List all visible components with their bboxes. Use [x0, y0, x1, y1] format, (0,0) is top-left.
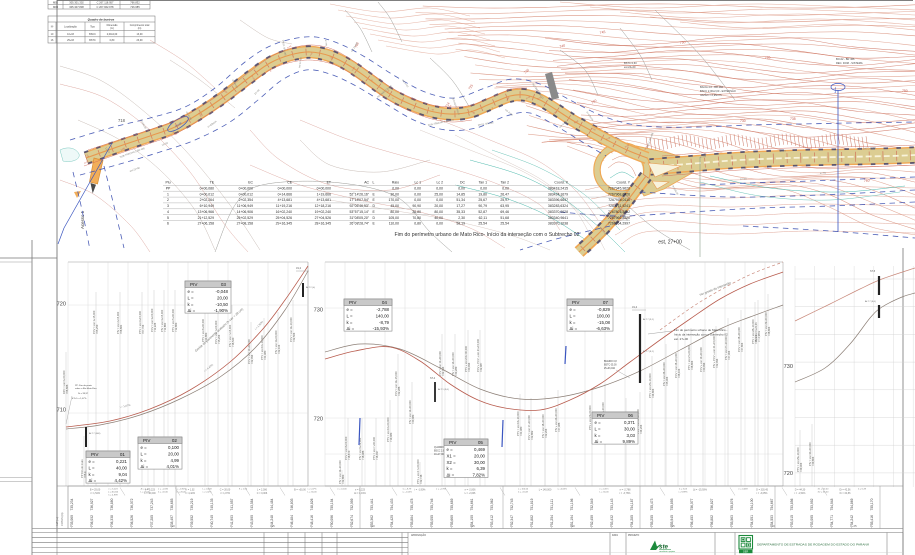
svg-text:35,33: 35,33	[456, 210, 465, 214]
svg-text:753,143: 753,143	[610, 498, 614, 510]
svg-text:BSCC: BSCC	[89, 33, 96, 36]
svg-text:751,882: 751,882	[530, 515, 534, 527]
svg-text:25,00: 25,00	[434, 192, 443, 196]
svg-text:756,827: 756,827	[710, 498, 714, 510]
svg-text:20,00: 20,00	[474, 453, 486, 458]
svg-text:BSTC 0,60: BSTC 0,60	[624, 61, 637, 65]
svg-text:e = 0,469: e = 0,469	[738, 488, 748, 490]
svg-text:e = 5,223: e = 5,223	[108, 488, 118, 490]
svg-text:10+17,00: 10+17,00	[434, 454, 444, 456]
svg-text:K = 1,02: K = 1,02	[186, 489, 196, 492]
svg-text:110,00: 110,00	[389, 222, 399, 226]
svg-text:722,863: 722,863	[341, 474, 345, 484]
svg-text:752,347: 752,347	[510, 515, 514, 527]
svg-text:63,95: 63,95	[500, 204, 509, 208]
svg-text:C 267.118.957: C 267.118.957	[97, 1, 114, 5]
svg-text:k = -15,08: k = -15,08	[518, 491, 529, 493]
svg-text:0+00,000: 0+00,000	[239, 187, 254, 191]
svg-text:753,412: 753,412	[490, 515, 494, 527]
svg-text:Δi =: Δi =	[570, 326, 578, 331]
svg-text:k = -8,79: k = -8,79	[403, 488, 412, 490]
svg-text:766.832: 766.832	[130, 1, 140, 5]
svg-text:05: 05	[478, 440, 484, 445]
svg-text:14+06,906: 14+06,906	[237, 210, 253, 214]
svg-text:15: 15	[271, 524, 275, 528]
svg-text:e =: e =	[188, 289, 195, 294]
svg-text:730: 730	[314, 308, 323, 314]
svg-text:728,304: 728,304	[754, 334, 758, 344]
svg-text:724,204: 724,204	[639, 424, 643, 434]
svg-text:L: L	[373, 181, 375, 185]
svg-text:715,204: 715,204	[217, 334, 221, 344]
svg-text:L =: L =	[141, 451, 147, 456]
svg-text:4: 4	[167, 210, 169, 214]
svg-text:4+13,681: 4+13,681	[278, 198, 293, 202]
svg-text:10+03: 10+03	[67, 33, 74, 36]
svg-text:754,667: 754,667	[770, 498, 774, 510]
svg-text:i = -1,90%: i = -1,90%	[176, 488, 186, 490]
svg-text:PP: PP	[166, 187, 171, 191]
svg-text:REC. DOM - SISTEMA: REC. DOM - SISTEMA	[836, 61, 863, 65]
svg-text:BSTC 05,00: BSTC 05,00	[604, 365, 617, 367]
svg-text:0,00: 0,00	[436, 187, 443, 191]
svg-text:62,11: 62,11	[479, 216, 487, 220]
svg-text:40,00: 40,00	[116, 465, 128, 470]
svg-text:726,804: 726,804	[690, 360, 694, 370]
svg-text:2+02,264: 2+02,264	[200, 198, 215, 202]
svg-text:k = -10,50: k = -10,50	[158, 491, 169, 493]
svg-text:L = 20,00: L = 20,00	[140, 491, 150, 493]
svg-text:k = 3,03: k = 3,03	[679, 488, 688, 490]
svg-text:0,80: 0,80	[110, 39, 115, 42]
svg-text:720: 720	[784, 471, 793, 477]
svg-text:727,804: 727,804	[740, 342, 744, 352]
svg-text:721,380: 721,380	[519, 426, 523, 436]
svg-text:Tan 2: Tan 2	[501, 181, 509, 185]
svg-text:ALT 1 (9,0): ALT 1 (9,0)	[438, 388, 449, 391]
svg-text:92°06'46,53": 92°06'46,53"	[349, 204, 369, 208]
svg-text:720: 720	[57, 302, 66, 308]
svg-text:755,255: 755,255	[650, 515, 654, 527]
svg-text:20: 20	[371, 524, 375, 528]
svg-text:720,094: 720,094	[702, 362, 706, 372]
svg-text:Lc 2: Lc 2	[437, 181, 444, 185]
svg-text:746,803: 746,803	[290, 498, 294, 510]
svg-text:40,00: 40,00	[434, 216, 443, 220]
svg-text:718,386: 718,386	[361, 450, 365, 460]
svg-text:28+16,345: 28+16,345	[315, 222, 331, 226]
svg-text:25,54: 25,54	[500, 222, 509, 226]
svg-text:736,526: 736,526	[130, 515, 134, 527]
svg-text:736,880: 736,880	[110, 498, 114, 510]
svg-text:-1,90%: -1,90%	[214, 308, 228, 313]
svg-text:754,285: 754,285	[630, 515, 634, 527]
svg-text:Δi =: Δi =	[89, 478, 97, 483]
svg-text:10: 10	[171, 524, 175, 528]
svg-text:721,380: 721,380	[263, 350, 267, 360]
svg-text:740,135: 740,135	[210, 498, 214, 510]
svg-text:Δi =: Δi =	[188, 308, 196, 313]
svg-text:751,111: 751,111	[550, 499, 554, 511]
svg-text:Δi = 1,06: Δi = 1,06	[141, 487, 150, 490]
svg-text:ALT 7 (046): ALT 7 (046)	[89, 432, 101, 435]
svg-text:BO-02 - BR 466: BO-02 - BR 466	[836, 57, 855, 61]
svg-text:705,259: 705,259	[95, 324, 99, 334]
svg-text:30,00: 30,00	[390, 192, 399, 196]
svg-text:724,804: 724,804	[651, 388, 655, 398]
svg-text:k = 4,999: k = 4,999	[108, 495, 118, 497]
svg-text:L = 30,00: L = 30,00	[307, 491, 317, 493]
svg-text:ET-4 i = 1,07%: ET-4 i = 1,07%	[72, 398, 86, 400]
svg-text:25: 25	[471, 524, 475, 528]
svg-text:(m): (m)	[138, 27, 142, 30]
svg-text:719,083: 719,083	[389, 432, 393, 442]
svg-text:752,099: 752,099	[350, 498, 354, 510]
svg-text:PROJETO: PROJETO	[628, 534, 639, 537]
svg-text:729,804: 729,804	[811, 456, 815, 466]
svg-text:L =: L =	[595, 426, 601, 431]
svg-text:C = 20,00: C = 20,00	[220, 489, 231, 492]
svg-text:e =: e =	[89, 459, 96, 464]
svg-text:Δi =: Δi =	[447, 473, 455, 478]
svg-text:755: 755	[765, 55, 771, 60]
svg-text:722,286: 722,286	[397, 386, 401, 396]
svg-text:Quadro de bueiros: Quadro de bueiros	[88, 18, 115, 22]
svg-text:e=7%: e=7%	[324, 40, 328, 47]
svg-text:Raio: Raio	[392, 181, 399, 185]
svg-text:737,285: 737,285	[150, 515, 154, 527]
svg-text:727,304: 727,304	[727, 350, 731, 360]
svg-text:722,094: 722,094	[250, 354, 254, 364]
svg-text:756,453: 756,453	[690, 515, 694, 527]
svg-text:718,670: 718,670	[347, 450, 351, 460]
svg-text:e =: e =	[347, 307, 354, 312]
svg-text:753,441: 753,441	[370, 498, 374, 510]
svg-text:20,00: 20,00	[434, 204, 443, 208]
svg-text:0,00: 0,00	[414, 198, 421, 202]
svg-text:30: 30	[571, 524, 575, 528]
svg-text:743,584: 743,584	[250, 498, 254, 510]
svg-text:L = 140,000: L = 140,000	[539, 489, 552, 492]
svg-text:383283,6324: 383283,6324	[548, 204, 568, 208]
svg-text:716,520: 716,520	[231, 337, 235, 347]
svg-text:EC: EC	[248, 181, 253, 185]
svg-text:k =: k =	[141, 458, 147, 463]
svg-text:D = 44,30: D = 44,30	[795, 489, 806, 492]
svg-text:754,187: 754,187	[630, 498, 634, 510]
svg-text:710: 710	[57, 408, 66, 414]
svg-text:ALT 7 (9,1): ALT 7 (9,1)	[643, 318, 654, 321]
svg-text:25+04,526: 25+04,526	[276, 216, 292, 220]
svg-text:752,549: 752,549	[590, 498, 594, 510]
svg-text:Di = 39,97: Di = 39,97	[78, 393, 89, 395]
svg-text:M03: M03	[53, 5, 59, 9]
svg-text:i = -3,76%: i = -3,76%	[620, 492, 632, 495]
svg-text:M02: M02	[53, 1, 59, 5]
svg-text:PIV: PIV	[449, 440, 457, 445]
svg-text:7267908,0110: 7267908,0110	[608, 198, 630, 202]
svg-text:720: 720	[314, 417, 323, 423]
svg-text:L = 100,00: L = 100,00	[518, 488, 529, 490]
svg-text:25+02,529: 25+02,529	[237, 216, 253, 220]
svg-text:07: 07	[603, 300, 609, 305]
svg-text:17,27: 17,27	[456, 204, 465, 208]
svg-text:k =: k =	[188, 302, 194, 307]
svg-text:7267801,4052: 7267801,4052	[608, 210, 630, 214]
svg-text:756,077: 756,077	[690, 498, 694, 510]
svg-text:i = -1,90%: i = -1,90%	[415, 489, 427, 492]
svg-text:754,869: 754,869	[850, 498, 854, 510]
svg-text:45,00: 45,00	[390, 204, 399, 208]
svg-text:718: 718	[118, 118, 126, 123]
svg-text:6,39: 6,39	[476, 466, 485, 471]
svg-text:741,957: 741,957	[230, 498, 234, 510]
svg-text:0,00: 0,00	[436, 198, 443, 202]
svg-text:e = -2,788: e = -2,788	[620, 489, 632, 492]
svg-text:0,371: 0,371	[624, 420, 636, 425]
svg-text:711,860: 711,860	[163, 322, 167, 332]
svg-text:58,19: 58,19	[456, 222, 465, 226]
svg-text:7267945,9620: 7267945,9620	[608, 187, 630, 191]
svg-text:51,34: 51,34	[456, 198, 465, 202]
svg-text:COTAS (m): COTAS (m)	[60, 513, 64, 526]
svg-text:754,661: 754,661	[470, 498, 474, 510]
svg-text:750,096: 750,096	[330, 515, 334, 527]
svg-text:DC: DC	[460, 181, 465, 185]
svg-text:i = 4,42%: i = 4,42%	[185, 492, 196, 495]
svg-text:722,094: 722,094	[715, 358, 719, 368]
svg-text:20,00: 20,00	[168, 451, 180, 456]
svg-text:L =: L =	[570, 313, 576, 318]
svg-text:Fim do perímetro urbano de Mat: Fim do perímetro urbano de Mato Rico -	[674, 328, 727, 332]
svg-text:est. 27+00: est. 27+00	[674, 337, 688, 341]
svg-text:PIV: PIV	[597, 413, 605, 418]
svg-text:752,674: 752,674	[350, 515, 354, 527]
svg-text:720,494: 720,494	[467, 362, 471, 372]
svg-text:25+03,042: 25+03,042	[604, 368, 616, 370]
svg-text:0,00: 0,00	[480, 187, 487, 191]
svg-text:140,00: 140,00	[376, 313, 390, 318]
svg-text:753,856: 753,856	[790, 498, 794, 510]
svg-text:01: 01	[120, 452, 126, 457]
svg-text:730: 730	[740, 119, 746, 123]
svg-text:738,685: 738,685	[170, 498, 174, 510]
svg-text:751,196: 751,196	[570, 498, 574, 510]
svg-text:i = 1,54%: i = 1,54%	[90, 492, 101, 495]
svg-text:9,04: 9,04	[118, 472, 127, 477]
svg-text:ALT 7 (8,1): ALT 7 (8,1)	[643, 350, 654, 353]
svg-text:i = -1,54%: i = -1,54%	[795, 492, 807, 495]
svg-text:736,927: 736,927	[90, 498, 94, 510]
svg-text:748,416: 748,416	[310, 515, 314, 527]
svg-text:PIV: PIV	[349, 300, 357, 305]
svg-text:e=7%: e=7%	[820, 172, 827, 175]
svg-text:736,032: 736,032	[90, 515, 94, 527]
svg-text:2,00x2,00: 2,00x2,00	[107, 33, 118, 36]
svg-text:0,100: 0,100	[168, 445, 180, 450]
svg-text:DEPARTAMENTO DE ESTRADAS DE RO: DEPARTAMENTO DE ESTRADAS DE RODAGEM DO E…	[757, 543, 869, 547]
svg-text:Tan 1: Tan 1	[479, 181, 487, 185]
svg-text:305.307.838: 305.307.838	[69, 5, 84, 9]
svg-text:L = 40,000: L = 40,000	[108, 491, 119, 493]
svg-text:383396,6647: 383396,6647	[548, 198, 568, 202]
svg-text:0,00: 0,00	[502, 187, 509, 191]
svg-text:25,97: 25,97	[500, 198, 509, 202]
svg-text:0+00,012: 0+00,012	[239, 192, 254, 196]
svg-text:ST-4: ST-4	[430, 377, 436, 380]
svg-text:31,2: 31,2	[296, 266, 302, 270]
svg-text:35: 35	[671, 524, 675, 528]
svg-text:26°08'28,74": 26°08'28,74"	[349, 222, 369, 226]
svg-text:305.301.302: 305.301.302	[69, 1, 84, 5]
svg-text:B = +03,00: B = +03,00	[294, 489, 306, 492]
svg-text:19,80: 19,80	[478, 192, 487, 196]
svg-text:0,00: 0,00	[414, 192, 421, 196]
svg-text:0,00: 0,00	[436, 222, 443, 226]
svg-text:755,563: 755,563	[730, 515, 734, 527]
svg-text:754,051: 754,051	[750, 515, 754, 527]
svg-text:ALT 2 (h): ALT 2 (h)	[306, 286, 315, 289]
svg-text:722,094: 722,094	[441, 366, 445, 376]
svg-text:26,80: 26,80	[412, 210, 421, 214]
svg-text:Localização: Localização	[64, 26, 77, 29]
svg-text:L =: L =	[89, 465, 95, 470]
svg-text:727,386: 727,386	[557, 422, 561, 432]
svg-text:722,746: 722,746	[419, 474, 423, 484]
svg-text:PIV: PIV	[572, 300, 580, 305]
svg-text:0,469: 0,469	[474, 447, 486, 452]
svg-text:736,338: 736,338	[110, 515, 114, 527]
svg-text:40: 40	[771, 524, 775, 528]
svg-text:25+03: 25+03	[67, 39, 74, 42]
svg-text:753,095: 753,095	[810, 515, 814, 527]
svg-text:e =: e =	[447, 447, 454, 452]
svg-text:sobre o Rio Mato Rico: sobre o Rio Mato Rico	[75, 387, 97, 390]
svg-text:Ki = 34,86: Ki = 34,86	[840, 492, 852, 495]
svg-text:-10,50: -10,50	[216, 302, 229, 307]
svg-text:722,862: 722,862	[530, 430, 534, 440]
svg-text:Plu: Plu	[166, 181, 171, 185]
svg-text:O = 330,45: O = 330,45	[756, 489, 769, 492]
svg-text:C = 0,006: C = 0,006	[257, 492, 268, 495]
svg-text:100,00: 100,00	[597, 313, 611, 318]
svg-text:756,882: 756,882	[710, 515, 714, 527]
svg-text:i = -6,63%: i = -6,63%	[557, 488, 567, 490]
svg-text:BACIA 4.6 - BR 466: BACIA 4.6 - BR 466	[700, 85, 723, 89]
svg-text:k =: k =	[570, 320, 576, 325]
svg-text:Coord. X: Coord. X	[554, 181, 568, 185]
svg-text:e = 5,223: e = 5,223	[355, 489, 366, 492]
svg-text:Tipo: Tipo	[90, 26, 95, 29]
svg-text:25,54: 25,54	[478, 222, 487, 226]
svg-text:02: 02	[172, 438, 178, 443]
svg-text:31,4: 31,4	[632, 305, 638, 309]
svg-text:consultoria e projetos: consultoria e projetos	[659, 550, 675, 553]
svg-text:16+02,240: 16+02,240	[276, 210, 292, 214]
svg-text:712,863: 712,863	[174, 322, 178, 332]
svg-text:30,00: 30,00	[474, 460, 486, 465]
svg-text:i = 1,02%: i = 1,02%	[202, 491, 211, 493]
svg-text:750,194: 750,194	[330, 498, 334, 510]
svg-text:720,083: 720,083	[411, 414, 415, 424]
svg-text:06: 06	[628, 413, 634, 418]
svg-text:PIV: PIV	[91, 452, 99, 457]
svg-text:750: 750	[902, 89, 908, 93]
svg-text:735: 735	[790, 117, 796, 121]
svg-text:80,00: 80,00	[434, 210, 443, 214]
svg-text:e = -1,035: e = -1,035	[158, 488, 169, 490]
svg-text:739,552: 739,552	[190, 515, 194, 527]
svg-text:2,30: 2,30	[458, 216, 465, 220]
svg-text:728,804: 728,804	[767, 326, 771, 336]
svg-text:744,484: 744,484	[270, 498, 274, 510]
svg-text:k =: k =	[447, 466, 453, 471]
svg-text:03: 03	[221, 282, 227, 287]
svg-text:383418,2415: 383418,2415	[548, 187, 568, 191]
svg-text:730: 730	[784, 364, 793, 370]
svg-text:7267966,8020: 7267966,8020	[608, 216, 630, 220]
svg-text:e = -2,006: e = -2,006	[465, 489, 477, 492]
svg-text:13,00: 13,00	[137, 33, 144, 36]
svg-text:737,243: 737,243	[150, 498, 154, 510]
svg-text:707,704: 707,704	[141, 324, 145, 334]
svg-text:105,00: 105,00	[388, 216, 399, 220]
svg-text:Δi = 4,01%: Δi = 4,01%	[354, 492, 367, 495]
svg-text:-15,93%: -15,93%	[373, 326, 389, 331]
svg-text:k = 6,39: k = 6,39	[858, 488, 867, 490]
svg-text:7,82%: 7,82%	[473, 473, 486, 478]
svg-text:52,87: 52,87	[478, 210, 487, 214]
svg-text:0,00: 0,00	[414, 187, 421, 191]
svg-text:DER: DER	[743, 551, 748, 554]
svg-text:4+13,681: 4+13,681	[317, 198, 332, 202]
svg-text:0,00: 0,00	[392, 187, 399, 191]
svg-text:Δi =: Δi =	[141, 464, 149, 469]
svg-text:726.685: 726.685	[130, 5, 140, 9]
svg-text:754,433: 754,433	[390, 498, 394, 510]
svg-text:L =: L =	[347, 313, 353, 318]
svg-text:PIV: PIV	[190, 282, 198, 287]
svg-text:e =: e =	[570, 307, 577, 312]
svg-text:722,104: 722,104	[277, 344, 281, 354]
svg-text:754,771: 754,771	[830, 515, 834, 527]
svg-text:735,069: 735,069	[70, 515, 74, 527]
svg-text:4,01%: 4,01%	[167, 464, 180, 469]
svg-text:PP: Fim da ponte: PP: Fim da ponte	[75, 384, 93, 387]
svg-text:740,740: 740,740	[210, 515, 214, 527]
svg-text:Nº: Nº	[51, 25, 54, 29]
svg-text:755,170: 755,170	[870, 498, 874, 510]
svg-text:17°18'07,54": 17°18'07,54"	[349, 198, 369, 202]
svg-text:5: 5	[167, 216, 169, 220]
svg-text:i = 9,89%: i = 9,89%	[678, 491, 687, 493]
svg-text:0+00,012: 0+00,012	[200, 192, 215, 196]
svg-text:755,669: 755,669	[450, 515, 454, 527]
svg-text:53°57'15,14": 53°57'15,14"	[349, 210, 369, 214]
svg-text:753,015: 753,015	[790, 515, 794, 527]
svg-text:754,420: 754,420	[390, 515, 394, 527]
svg-text:L = 2,006: L = 2,006	[257, 489, 268, 492]
svg-text:383370,9028: 383370,9028	[548, 210, 568, 214]
svg-text:Coord. Y: Coord. Y	[616, 181, 630, 185]
svg-text:e=7%: e=7%	[780, 149, 787, 153]
svg-text:725,304: 725,304	[665, 376, 669, 386]
svg-text:30,00: 30,00	[624, 426, 636, 431]
svg-text:3: 3	[167, 204, 169, 208]
svg-text:0+00,080: 0+00,080	[200, 187, 215, 191]
svg-text:Δi =: Δi =	[347, 326, 355, 331]
svg-text:12+18,216: 12+18,216	[315, 204, 331, 208]
